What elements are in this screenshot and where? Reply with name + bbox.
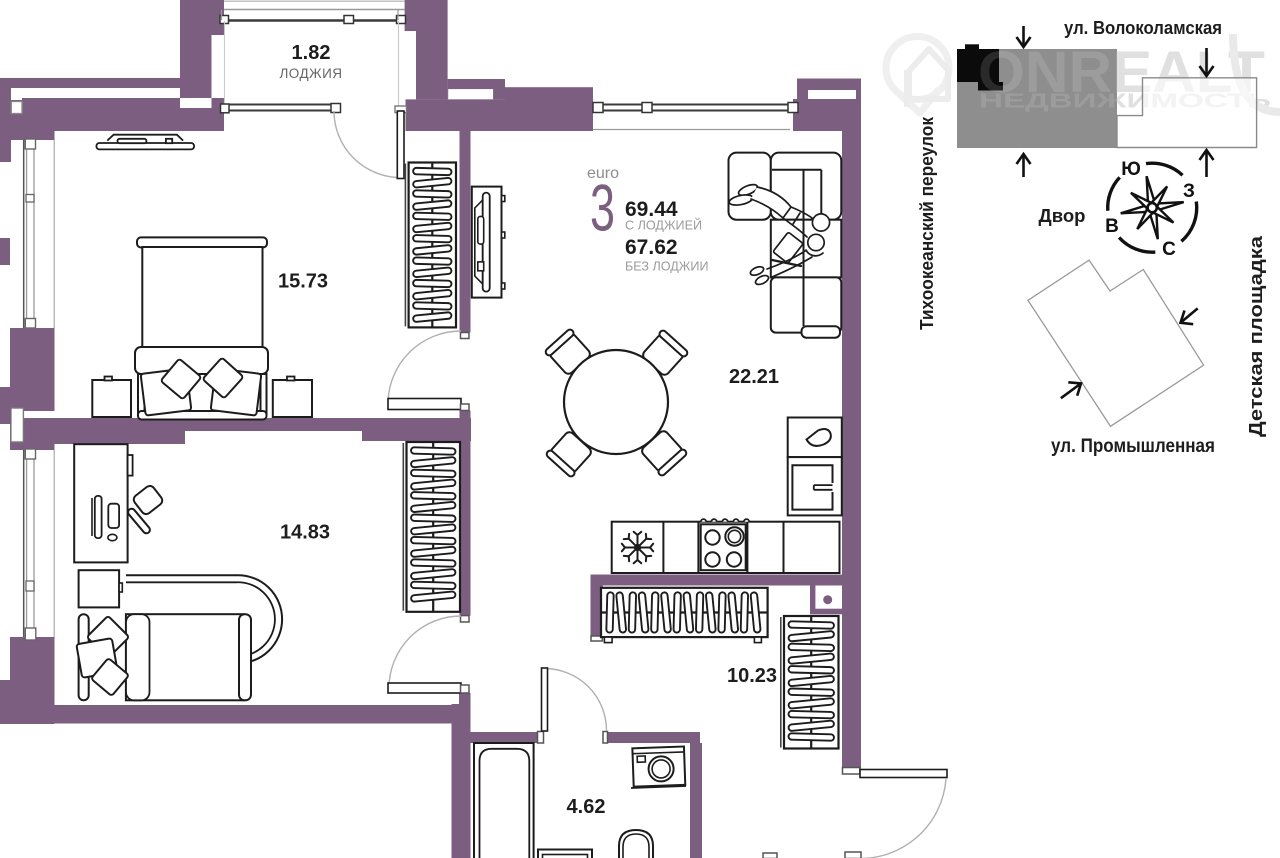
svg-text:15.73: 15.73: [278, 271, 328, 293]
svg-text:С: С: [1162, 239, 1176, 260]
svg-text:3: 3: [590, 171, 615, 245]
svg-text:БЕЗ ЛОДЖИИ: БЕЗ ЛОДЖИИ: [625, 260, 709, 274]
svg-text:ул. Волоколамская: ул. Волоколамская: [1064, 17, 1222, 38]
svg-text:10.23: 10.23: [727, 665, 777, 687]
svg-text:1.82: 1.82: [292, 42, 331, 64]
svg-text:14.83: 14.83: [280, 522, 330, 544]
svg-text:67.62: 67.62: [625, 236, 678, 259]
svg-text:Двор: Двор: [1039, 205, 1086, 226]
svg-text:22.21: 22.21: [729, 366, 779, 388]
svg-text:ЛОДЖИЯ: ЛОДЖИЯ: [279, 66, 342, 81]
svg-text:4.62: 4.62: [567, 796, 606, 818]
svg-text:С ЛОДЖИЕЙ: С ЛОДЖИЕЙ: [625, 218, 702, 233]
svg-text:69.44: 69.44: [625, 198, 678, 221]
svg-text:В: В: [1105, 216, 1119, 237]
svg-text:ул. Промышленная: ул. Промышленная: [1051, 436, 1215, 457]
svg-text:Тихоокеанский переулок: Тихоокеанский переулок: [916, 116, 937, 330]
svg-text:Ю: Ю: [1121, 159, 1141, 180]
svg-text:З: З: [1183, 181, 1195, 202]
svg-text:Детская площадка: Детская площадка: [1245, 235, 1266, 437]
